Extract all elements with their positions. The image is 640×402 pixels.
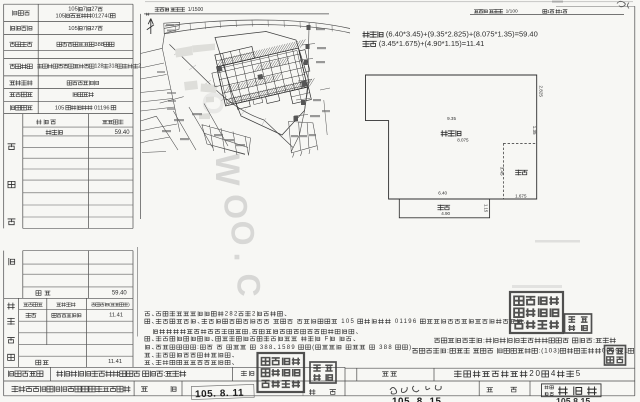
svg-text:4: 4 xyxy=(551,369,557,378)
svg-text:01196: 01196 xyxy=(92,105,111,111)
svg-text:1/100: 1/100 xyxy=(503,9,518,15)
svg-text:105 8 15: 105 8 15 xyxy=(556,397,590,402)
svg-text:(: ( xyxy=(312,345,315,351)
svg-text:59.40: 59.40 xyxy=(115,130,131,136)
svg-text:F: F xyxy=(322,336,330,342)
svg-text:2: 2 xyxy=(252,311,257,317)
svg-text::: : xyxy=(593,337,596,344)
svg-text:59.40: 59.40 xyxy=(112,291,128,297)
svg-text:3.45: 3.45 xyxy=(500,167,505,176)
svg-text:O: O xyxy=(225,221,261,246)
svg-text::: : xyxy=(163,369,165,378)
svg-text:5: 5 xyxy=(576,369,582,378)
svg-text:C: C xyxy=(231,273,267,296)
svg-text:105: 105 xyxy=(338,319,358,325)
svg-text:000931: 000931 xyxy=(602,348,629,355)
svg-text:105: 105 xyxy=(56,13,66,19)
svg-text:105: 105 xyxy=(55,105,66,111)
svg-text:(3.45*1.675)+(4.90*1.15)=11.41: (3.45*1.675)+(4.90*1.15)=11.41 xyxy=(377,39,485,48)
svg-text:105: 105 xyxy=(68,26,78,32)
svg-text:6.40: 6.40 xyxy=(438,191,447,196)
svg-text:105. 8. 15: 105. 8. 15 xyxy=(392,397,442,402)
svg-text:388: 388 xyxy=(376,345,396,351)
svg-text:27: 27 xyxy=(91,7,97,13)
svg-text:105: 105 xyxy=(68,7,78,13)
svg-text:7: 7 xyxy=(83,7,86,13)
svg-text::: : xyxy=(483,337,486,344)
svg-text::: : xyxy=(197,345,200,351)
svg-text::(103): :(103) xyxy=(539,348,561,355)
svg-text:128: 128 xyxy=(94,64,103,70)
svg-text:9.35: 9.35 xyxy=(447,116,456,121)
svg-text:.: . xyxy=(228,253,264,262)
svg-text:388: 388 xyxy=(257,345,274,351)
svg-text:W: W xyxy=(208,153,246,186)
svg-text:11.41: 11.41 xyxy=(108,359,122,365)
svg-text:,: , xyxy=(524,319,527,325)
svg-text:8.075: 8.075 xyxy=(457,137,469,142)
svg-text:(6.40*3.45)+(9.35*2.825)+(8.07: (6.40*3.45)+(9.35*2.825)+(8.075*1.35)=59… xyxy=(384,30,538,39)
svg-text:1/1500: 1/1500 xyxy=(185,7,204,13)
svg-text:,: , xyxy=(249,329,252,335)
svg-text:282: 282 xyxy=(225,311,239,317)
svg-text:105. 8. 11: 105. 8. 11 xyxy=(195,388,244,401)
svg-text:1.15: 1.15 xyxy=(483,204,488,213)
svg-text:O: O xyxy=(218,194,254,219)
svg-text:4.90: 4.90 xyxy=(441,211,450,216)
svg-text:1.675: 1.675 xyxy=(515,194,527,199)
svg-text:20: 20 xyxy=(529,369,542,378)
svg-text:318: 318 xyxy=(108,64,117,70)
svg-text:012740: 012740 xyxy=(92,13,111,19)
svg-text:): ) xyxy=(409,345,412,351)
svg-text:7: 7 xyxy=(83,26,86,32)
svg-text:2.825: 2.825 xyxy=(538,86,543,98)
svg-text:27: 27 xyxy=(91,26,97,32)
svg-text:O: O xyxy=(196,91,229,114)
svg-text:11.41: 11.41 xyxy=(109,313,123,319)
svg-text:01196: 01196 xyxy=(392,319,420,325)
svg-text::: : xyxy=(447,348,450,355)
svg-text:388: 388 xyxy=(94,42,104,48)
svg-text:1589: 1589 xyxy=(278,345,299,351)
svg-text:1: 1 xyxy=(560,9,563,15)
svg-text:1: 1 xyxy=(547,9,550,15)
svg-text:1.35: 1.35 xyxy=(532,126,537,135)
